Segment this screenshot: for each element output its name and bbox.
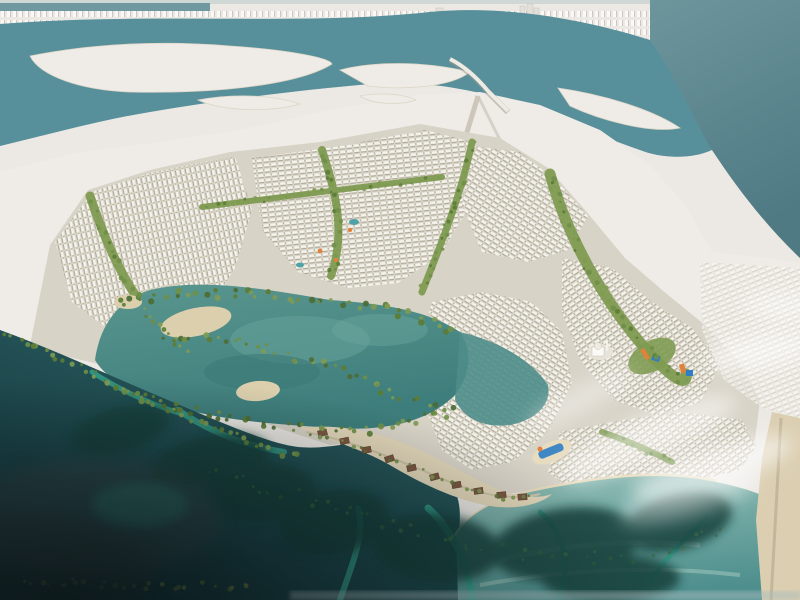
tree-dot xyxy=(433,257,437,261)
tree-dot xyxy=(369,185,373,189)
tree-dot xyxy=(466,166,469,169)
tree-dot xyxy=(307,192,311,196)
tree-dot xyxy=(176,294,180,298)
tree-dot xyxy=(462,181,467,186)
tree-dot xyxy=(336,208,341,213)
tree-dot xyxy=(336,262,340,266)
tree-dot xyxy=(336,236,339,239)
tree-dot xyxy=(605,286,609,290)
tree-dot xyxy=(266,289,271,294)
tree-dot xyxy=(551,181,554,184)
tree-dot xyxy=(299,193,303,197)
tree-dot xyxy=(597,276,600,279)
tree-dot xyxy=(384,185,386,187)
tree-dot xyxy=(463,171,467,175)
tree-dot xyxy=(447,220,451,224)
tree-dot xyxy=(164,295,169,300)
tree-dot xyxy=(101,235,105,239)
tree-dot xyxy=(419,284,423,288)
tree-dot xyxy=(233,288,238,293)
tree-dot xyxy=(399,183,402,186)
tree-dot xyxy=(557,192,562,197)
tree-dot xyxy=(437,176,440,179)
tree-dot xyxy=(567,223,572,228)
tree-dot xyxy=(137,292,143,298)
tree-dot xyxy=(329,182,334,187)
tree-dot xyxy=(112,255,116,259)
tree-dot xyxy=(320,188,324,192)
tree-dot xyxy=(426,282,429,285)
tree-dot xyxy=(332,193,337,198)
tree-dot xyxy=(122,279,127,284)
tree-dot xyxy=(428,274,432,278)
tree-dot xyxy=(108,241,111,244)
tree-dot xyxy=(572,237,575,240)
tree-dot xyxy=(330,191,333,194)
tree-dot xyxy=(329,178,333,182)
tree-dot xyxy=(583,267,586,270)
tree-dot xyxy=(243,198,246,201)
tree-dot xyxy=(577,238,581,242)
tree-dot xyxy=(336,242,340,246)
tree-dot xyxy=(323,160,327,164)
tree-dot xyxy=(362,187,366,191)
tree-dot xyxy=(117,258,122,263)
tree-dot xyxy=(441,248,444,251)
tree-dot xyxy=(111,250,114,253)
tree-dot xyxy=(97,216,99,218)
tree-dot xyxy=(339,189,342,192)
tree-dot xyxy=(332,209,336,213)
tree-dot xyxy=(253,295,257,299)
tree-dot xyxy=(339,219,343,223)
tree-dot xyxy=(464,158,468,162)
tree-dot xyxy=(104,230,109,235)
tree-dot xyxy=(457,189,461,193)
tree-dot xyxy=(450,210,454,214)
tree-dot xyxy=(573,231,576,234)
tree-dot xyxy=(334,268,337,271)
tree-dot xyxy=(473,140,476,143)
tree-dot xyxy=(205,206,208,209)
tree-dot xyxy=(332,243,337,248)
tree-dot xyxy=(131,287,135,291)
tree-dot xyxy=(583,259,587,263)
tree-dot xyxy=(424,176,428,180)
tree-dot xyxy=(176,288,182,294)
tree-dot xyxy=(326,176,330,180)
tree-dot xyxy=(253,196,257,200)
tree-dot xyxy=(471,149,474,152)
tree-dot xyxy=(114,264,118,268)
tree-dot xyxy=(433,267,436,270)
aerial-rendering xyxy=(0,0,800,600)
tree-dot xyxy=(327,268,331,272)
tree-dot xyxy=(378,181,382,185)
tree-dot xyxy=(561,204,566,209)
tree-dot xyxy=(434,251,437,254)
tree-dot xyxy=(96,210,99,213)
tree-dot xyxy=(249,290,253,294)
tree-dot xyxy=(89,203,94,208)
tree-dot xyxy=(96,224,98,226)
tree-dot xyxy=(600,291,605,296)
tree-dot xyxy=(89,200,93,204)
tree-dot xyxy=(353,189,355,191)
tree-dot xyxy=(325,170,330,175)
tree-dot xyxy=(459,197,462,200)
tree-dot xyxy=(193,290,198,295)
tree-dot xyxy=(285,195,289,199)
tree-dot xyxy=(216,202,220,206)
tree-dot xyxy=(440,237,443,240)
tree-dot xyxy=(333,253,337,257)
tree-dot xyxy=(213,288,218,293)
tree-dot xyxy=(186,293,191,298)
tree-dot xyxy=(268,197,271,200)
tree-dot xyxy=(272,295,277,300)
tree-dot xyxy=(204,292,210,298)
tree-dot xyxy=(420,179,423,182)
tree-dot xyxy=(443,224,446,227)
tree-dot xyxy=(215,295,221,301)
tree-dot xyxy=(236,200,240,204)
tree-dot xyxy=(263,201,266,204)
tree-dot xyxy=(560,220,563,223)
tree-dot xyxy=(551,176,556,181)
tree-dot xyxy=(445,233,449,237)
tree-dot xyxy=(97,226,101,230)
tree-dot xyxy=(223,202,227,206)
tree-dot xyxy=(549,187,553,191)
tree-dot xyxy=(312,188,316,192)
tree-dot xyxy=(429,264,432,267)
tree-dot xyxy=(453,201,457,205)
corner-haze xyxy=(0,300,800,600)
tree-dot xyxy=(337,233,341,237)
tree-dot xyxy=(562,210,565,213)
tree-dot xyxy=(152,293,155,296)
tree-dot xyxy=(595,280,600,285)
tree-dot xyxy=(334,219,337,222)
tree-dot xyxy=(321,154,324,157)
tree-dot xyxy=(586,270,591,275)
tree-dot xyxy=(233,294,237,298)
tree-dot xyxy=(574,249,577,252)
tree-dot xyxy=(559,201,562,204)
tree-dot xyxy=(453,205,457,209)
tree-dot xyxy=(411,182,413,184)
